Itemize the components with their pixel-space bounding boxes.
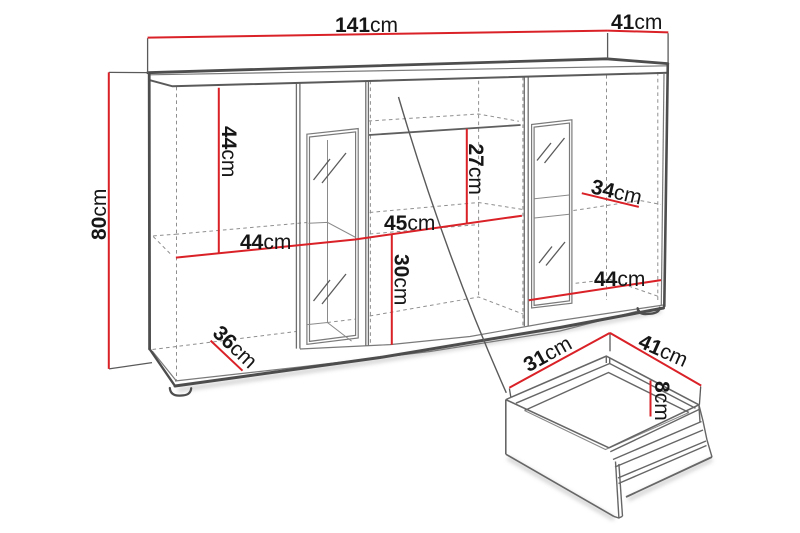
svg-text:80cm: 80cm <box>88 189 111 240</box>
svg-text:27cm: 27cm <box>464 144 487 195</box>
svg-text:141cm: 141cm <box>335 14 398 37</box>
svg-text:44cm: 44cm <box>240 231 291 254</box>
svg-text:41cm: 41cm <box>611 11 662 34</box>
svg-text:8cm: 8cm <box>650 381 673 421</box>
svg-text:45cm: 45cm <box>384 212 435 235</box>
svg-text:44cm: 44cm <box>217 126 240 177</box>
svg-text:44cm: 44cm <box>594 268 645 291</box>
svg-text:30cm: 30cm <box>390 254 413 305</box>
